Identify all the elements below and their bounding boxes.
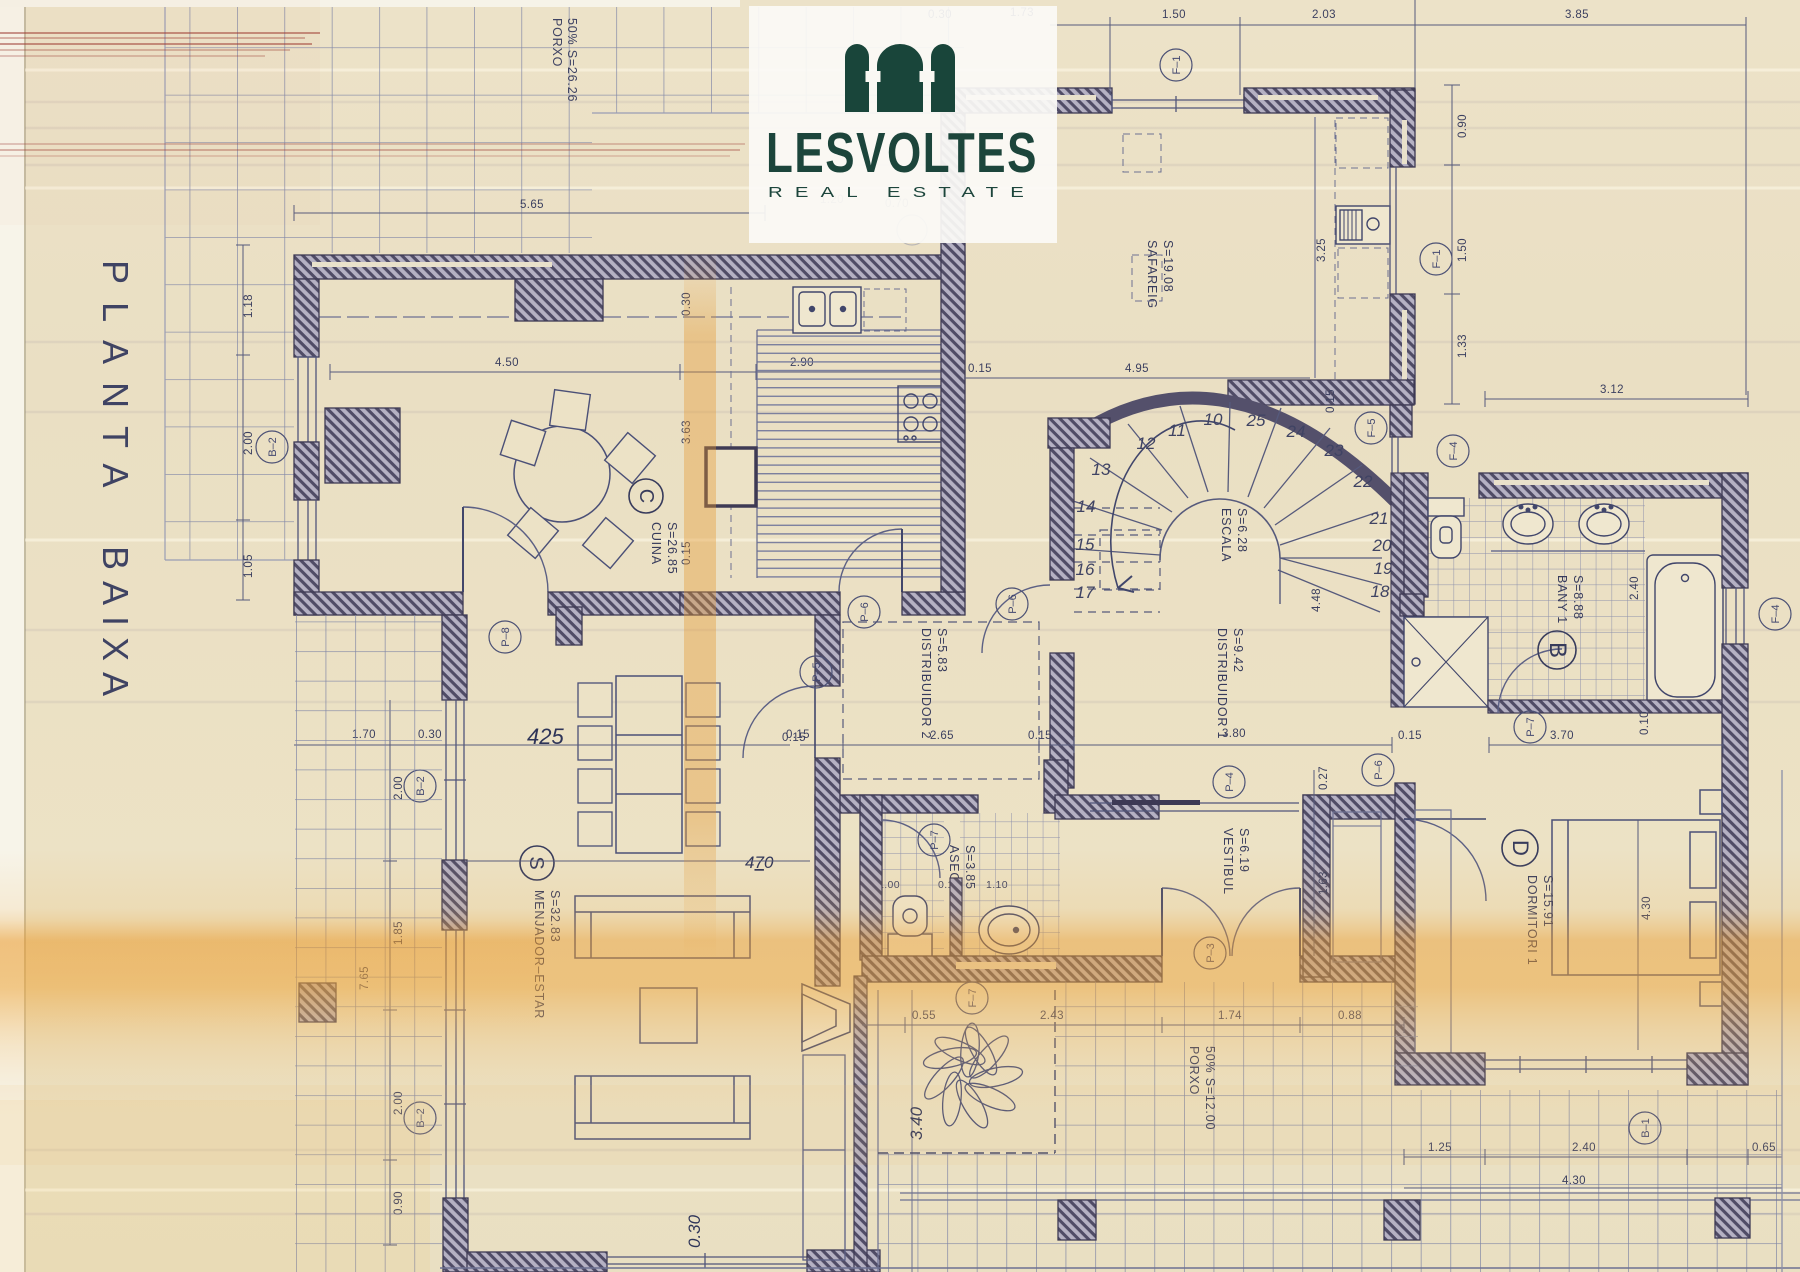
svg-text:21: 21 [1369, 509, 1389, 528]
svg-text:S=8.88: S=8.88 [1571, 575, 1585, 620]
svg-text:4.30: 4.30 [1562, 1175, 1586, 1187]
svg-text:BANY 1: BANY 1 [1555, 575, 1569, 624]
svg-text:3.85: 3.85 [1565, 9, 1589, 21]
svg-text:24: 24 [1286, 422, 1306, 441]
svg-text:4.48: 4.48 [1311, 588, 1323, 612]
svg-text:F–5: F–5 [1366, 419, 1378, 438]
svg-text:13: 13 [1092, 460, 1111, 479]
svg-text:S=5.83: S=5.83 [935, 628, 949, 673]
svg-text:S=26.85: S=26.85 [665, 522, 679, 575]
svg-text:20: 20 [1372, 536, 1392, 555]
svg-text:4.50: 4.50 [495, 357, 519, 369]
svg-text:0.15: 0.15 [1398, 730, 1422, 742]
svg-text:1.50: 1.50 [1162, 9, 1186, 21]
svg-text:B–2: B–2 [267, 437, 279, 457]
svg-text:3.70: 3.70 [1550, 730, 1574, 742]
svg-text:PORXO: PORXO [550, 18, 564, 67]
svg-text:1.05: 1.05 [243, 554, 255, 578]
svg-text:22: 22 [1353, 472, 1373, 491]
svg-text:3.80: 3.80 [1222, 728, 1246, 740]
svg-text:SAFAREIG: SAFAREIG [1145, 240, 1159, 309]
svg-text:C: C [635, 489, 657, 503]
svg-text:5.65: 5.65 [520, 199, 544, 211]
svg-text:2.03: 2.03 [1312, 9, 1336, 21]
svg-text:P–6: P–6 [1373, 760, 1385, 780]
svg-text:P–6: P–6 [859, 602, 871, 622]
svg-text:1.33: 1.33 [1457, 334, 1469, 358]
svg-text:18: 18 [1371, 582, 1390, 601]
svg-text:P–6: P–6 [1007, 594, 1019, 614]
svg-text:2.65: 2.65 [930, 730, 954, 742]
svg-text:3.25: 3.25 [1316, 238, 1328, 262]
svg-text:12: 12 [1137, 434, 1156, 453]
svg-text:ESCALA: ESCALA [1219, 508, 1233, 562]
svg-text:0.15: 0.15 [968, 363, 992, 375]
svg-text:PLANTA: PLANTA [95, 260, 136, 505]
svg-text:F–1: F–1 [1171, 56, 1183, 75]
svg-text:14: 14 [1077, 497, 1096, 516]
svg-text:S=6.28: S=6.28 [1235, 508, 1249, 553]
svg-text:19: 19 [1374, 559, 1393, 578]
svg-text:4.95: 4.95 [1125, 363, 1149, 375]
svg-text:0.90: 0.90 [1457, 114, 1469, 138]
svg-text:DISTRIBUIDOR 2: DISTRIBUIDOR 2 [919, 628, 933, 739]
svg-text:REAL ESTATE: REAL ESTATE [768, 184, 1036, 201]
svg-text:0.15: 0.15 [786, 729, 810, 741]
svg-text:1.50: 1.50 [1457, 238, 1469, 262]
svg-text:0.10: 0.10 [1639, 711, 1651, 735]
svg-text:BAIXA: BAIXA [95, 546, 136, 707]
svg-text:2.00: 2.00 [243, 431, 255, 455]
svg-text:1.18: 1.18 [243, 294, 255, 318]
svg-text:0.15: 0.15 [1325, 389, 1337, 413]
svg-text:2.40: 2.40 [1629, 576, 1641, 600]
svg-text:P–7: P–7 [1525, 717, 1537, 737]
svg-text:17: 17 [1076, 583, 1095, 602]
svg-text:P–7: P–7 [929, 830, 941, 850]
svg-text:0.15: 0.15 [1028, 730, 1052, 742]
svg-text:25: 25 [1246, 411, 1266, 430]
svg-text:P–5: P–5 [811, 662, 823, 682]
svg-text:P–8: P–8 [500, 627, 512, 647]
svg-text:DISTRIBUIDOR 1: DISTRIBUIDOR 1 [1215, 628, 1229, 739]
svg-text:S=19.08: S=19.08 [1161, 240, 1175, 293]
svg-text:23: 23 [1324, 441, 1344, 460]
svg-text:CUINA: CUINA [649, 522, 663, 565]
svg-text:F–4: F–4 [1770, 605, 1782, 624]
svg-text:F–4: F–4 [1448, 442, 1460, 461]
svg-text:B: B [1544, 642, 1571, 658]
svg-text:15: 15 [1076, 535, 1095, 554]
svg-text:F–1: F–1 [1431, 250, 1443, 269]
svg-text:P–4: P–4 [1224, 772, 1236, 792]
svg-text:LESVOLTES: LESVOLTES [766, 121, 1038, 185]
svg-text:0.27: 0.27 [1318, 766, 1330, 790]
svg-text:0.30: 0.30 [685, 1214, 704, 1248]
svg-text:16: 16 [1076, 560, 1095, 579]
svg-text:3.12: 3.12 [1600, 384, 1624, 396]
svg-text:S=9.42: S=9.42 [1231, 628, 1245, 673]
svg-text:11: 11 [1168, 421, 1186, 440]
svg-text:50% S=26.26: 50% S=26.26 [565, 18, 579, 102]
svg-text:10: 10 [1204, 410, 1223, 429]
